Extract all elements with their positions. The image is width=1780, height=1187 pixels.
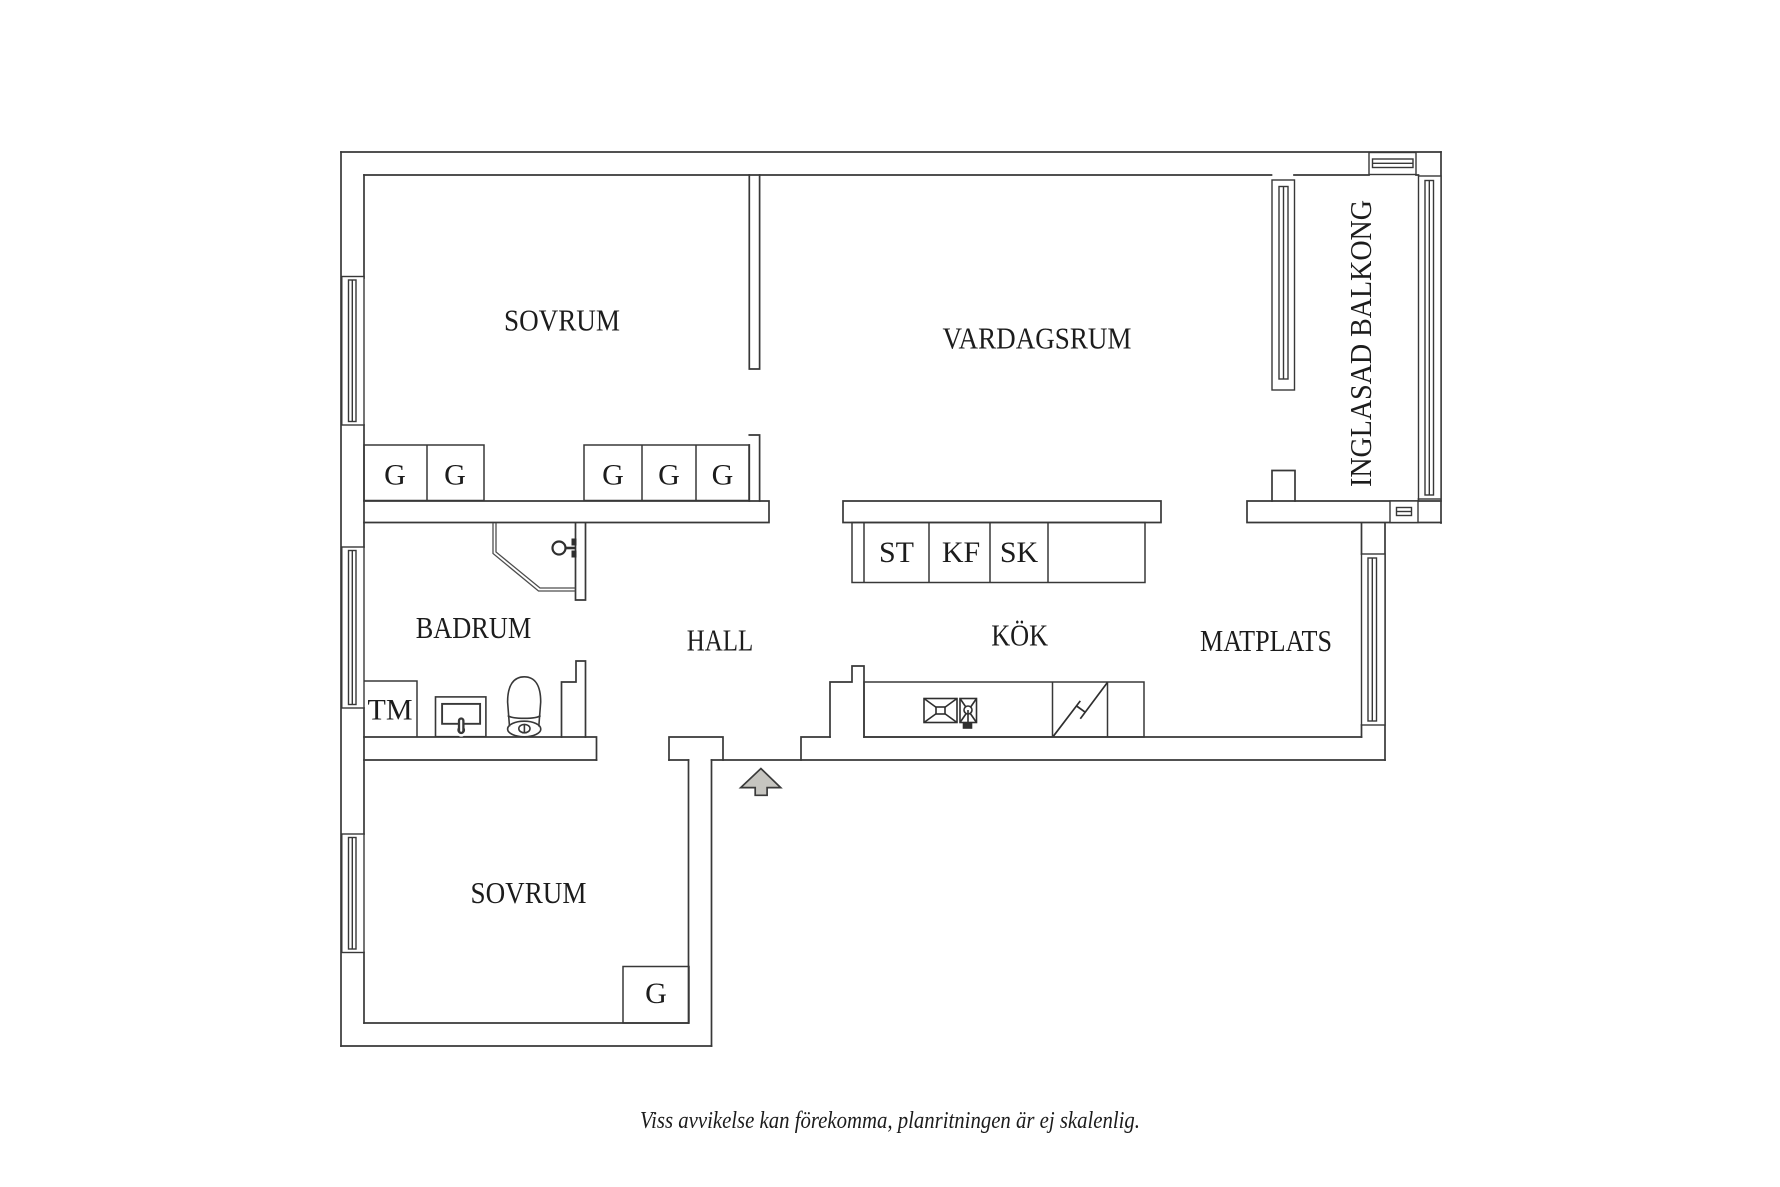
svg-text:G: G [602,459,624,492]
svg-text:TM: TM [368,694,413,727]
svg-text:G: G [712,459,734,492]
svg-text:VARDAGSRUM: VARDAGSRUM [943,321,1132,356]
svg-text:SOVRUM: SOVRUM [471,875,587,910]
svg-text:KF: KF [942,536,980,569]
svg-text:SOVRUM: SOVRUM [504,303,620,338]
svg-text:KÖK: KÖK [991,618,1049,653]
svg-text:G: G [444,459,466,492]
svg-text:HALL: HALL [687,623,754,658]
svg-text:G: G [645,977,667,1010]
svg-text:Viss avvikelse kan förekomma,: Viss avvikelse kan förekomma, planritnin… [640,1108,1140,1134]
svg-text:G: G [658,459,680,492]
svg-text:MATPLATS: MATPLATS [1200,623,1332,658]
svg-text:BADRUM: BADRUM [416,610,532,645]
svg-text:SK: SK [1000,536,1039,569]
svg-text:ST: ST [879,536,914,569]
svg-text:INGLASAD BALKONG: INGLASAD BALKONG [1343,200,1378,487]
svg-text:G: G [384,459,406,492]
